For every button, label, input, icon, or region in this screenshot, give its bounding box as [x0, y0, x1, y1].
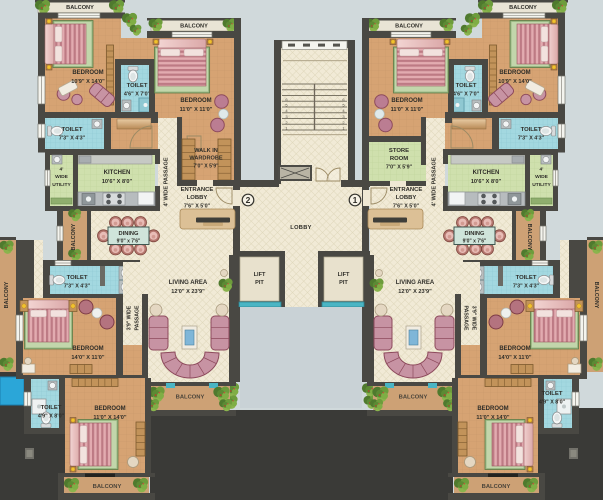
svg-text:7'3" X 4'3": 7'3" X 4'3"	[513, 284, 540, 290]
svg-text:BALCONY: BALCONY	[93, 484, 122, 490]
svg-text:TOILET: TOILET	[516, 275, 537, 281]
svg-text:BEDROOM: BEDROOM	[499, 346, 530, 352]
svg-text:10'6" X 8'0": 10'6" X 8'0"	[471, 179, 502, 185]
svg-text:TOILET: TOILET	[41, 405, 62, 411]
svg-text:BALCONY: BALCONY	[509, 5, 537, 11]
svg-text:BALCONY: BALCONY	[395, 24, 423, 30]
svg-text:7'0" X 5'9": 7'0" X 5'9"	[386, 165, 413, 171]
svg-text:WALK IN: WALK IN	[194, 148, 218, 154]
svg-text:BALCONY: BALCONY	[593, 282, 599, 309]
svg-text:4': 4'	[540, 167, 544, 173]
svg-text:1: 1	[353, 195, 358, 205]
svg-text:7'3" X 4'3": 7'3" X 4'3"	[59, 136, 86, 142]
svg-text:WIDE: WIDE	[55, 174, 69, 180]
svg-text:10'6" X 8'0": 10'6" X 8'0"	[102, 179, 133, 185]
svg-text:BALCONY: BALCONY	[399, 395, 428, 401]
svg-text:2: 2	[246, 195, 251, 205]
svg-text:BALCONY: BALCONY	[66, 5, 94, 11]
svg-text:4'9" X 8'0": 4'9" X 8'0"	[38, 414, 65, 420]
svg-text:ENTRANCE: ENTRANCE	[181, 187, 214, 193]
svg-text:7'3" X 4'3": 7'3" X 4'3"	[64, 284, 91, 290]
svg-text:BEDROOM: BEDROOM	[94, 406, 125, 412]
svg-text:4'6" X 7'0": 4'6" X 7'0"	[453, 92, 480, 98]
svg-text:4': 4'	[60, 167, 64, 173]
svg-text:BEDROOM: BEDROOM	[72, 346, 103, 352]
svg-text:KITCHEN: KITCHEN	[473, 170, 500, 176]
svg-text:UTILITY: UTILITY	[52, 182, 71, 188]
svg-text:11'0" X 14'0": 11'0" X 14'0"	[93, 415, 127, 421]
svg-text:BEDROOM: BEDROOM	[391, 98, 422, 104]
svg-text:4' WIDE PASSAGE: 4' WIDE PASSAGE	[164, 157, 170, 206]
svg-text:10'9" X 14'0": 10'9" X 14'0"	[498, 79, 532, 85]
svg-text:10'9" X 14'0": 10'9" X 14'0"	[71, 79, 105, 85]
svg-text:LIVING AREA: LIVING AREA	[396, 280, 435, 286]
svg-text:BALCONY: BALCONY	[180, 24, 208, 30]
svg-text:14'0" X 11'0": 14'0" X 11'0"	[71, 355, 105, 361]
svg-text:11'0" X 11'0": 11'0" X 11'0"	[391, 107, 424, 113]
svg-text:BEDROOM: BEDROOM	[180, 98, 211, 104]
svg-text:UTILITY: UTILITY	[532, 182, 551, 188]
svg-text:BALCONY: BALCONY	[526, 224, 532, 251]
svg-text:ENTRANCE: ENTRANCE	[390, 187, 423, 193]
svg-text:DINING: DINING	[465, 231, 485, 237]
svg-text:TOILET: TOILET	[456, 83, 477, 89]
svg-text:11'0" X 11'0": 11'0" X 11'0"	[180, 107, 213, 113]
svg-text:LOBBY: LOBBY	[396, 195, 417, 201]
svg-text:3'9" WIDE: 3'9" WIDE	[127, 305, 133, 330]
svg-text:11'0" X 14'0": 11'0" X 14'0"	[476, 415, 510, 421]
svg-text:BALCONY: BALCONY	[4, 281, 10, 308]
svg-text:12'0" X 23'9": 12'0" X 23'9"	[171, 289, 205, 295]
svg-text:BEDROOM: BEDROOM	[72, 70, 103, 76]
svg-text:LOBBY: LOBBY	[187, 195, 208, 201]
svg-text:TOILET: TOILET	[542, 391, 563, 397]
svg-text:TOILET: TOILET	[67, 275, 88, 281]
svg-text:LIFT: LIFT	[338, 272, 350, 278]
svg-text:TOILET: TOILET	[62, 127, 83, 133]
svg-text:LOBBY: LOBBY	[290, 225, 311, 231]
svg-text:BALCONY: BALCONY	[71, 223, 77, 250]
svg-text:7'3" X 4'3": 7'3" X 4'3"	[518, 136, 545, 142]
svg-text:14'0" X 11'0": 14'0" X 11'0"	[498, 355, 532, 361]
svg-text:WARDROBE: WARDROBE	[189, 156, 223, 162]
svg-text:WIDE: WIDE	[535, 174, 549, 180]
svg-text:TOILET: TOILET	[127, 83, 148, 89]
svg-text:BEDROOM: BEDROOM	[499, 70, 530, 76]
svg-text:4' WIDE PASSAGE: 4' WIDE PASSAGE	[432, 157, 438, 206]
svg-text:TOILET: TOILET	[521, 127, 542, 133]
svg-text:12'0" X 23'9": 12'0" X 23'9"	[398, 289, 432, 295]
svg-text:STORE: STORE	[389, 148, 409, 154]
svg-text:BALCONY: BALCONY	[176, 395, 205, 401]
svg-text:BEDROOM: BEDROOM	[477, 406, 508, 412]
svg-text:ROOM: ROOM	[390, 156, 408, 162]
svg-text:9'0" x 7'6": 9'0" x 7'6"	[117, 239, 141, 245]
svg-text:PIT: PIT	[255, 280, 264, 286]
svg-text:LIVING AREA: LIVING AREA	[169, 280, 208, 286]
svg-text:KITCHEN: KITCHEN	[104, 170, 131, 176]
svg-text:LIFT: LIFT	[254, 272, 266, 278]
svg-text:3'9" WIDE: 3'9" WIDE	[471, 306, 477, 331]
svg-text:PASSAGE: PASSAGE	[463, 306, 469, 332]
svg-text:DINING: DINING	[119, 231, 139, 237]
svg-text:4'6" X 7'0": 4'6" X 7'0"	[124, 92, 151, 98]
svg-text:9'0" x 7'6": 9'0" x 7'6"	[463, 239, 487, 245]
svg-text:PIT: PIT	[339, 280, 348, 286]
svg-text:PASSAGE: PASSAGE	[135, 305, 141, 331]
svg-text:BALCONY: BALCONY	[482, 484, 511, 490]
svg-text:4'9" X 8'0": 4'9" X 8'0"	[539, 400, 566, 406]
svg-text:7'0" X 5'9": 7'0" X 5'9"	[193, 164, 219, 170]
